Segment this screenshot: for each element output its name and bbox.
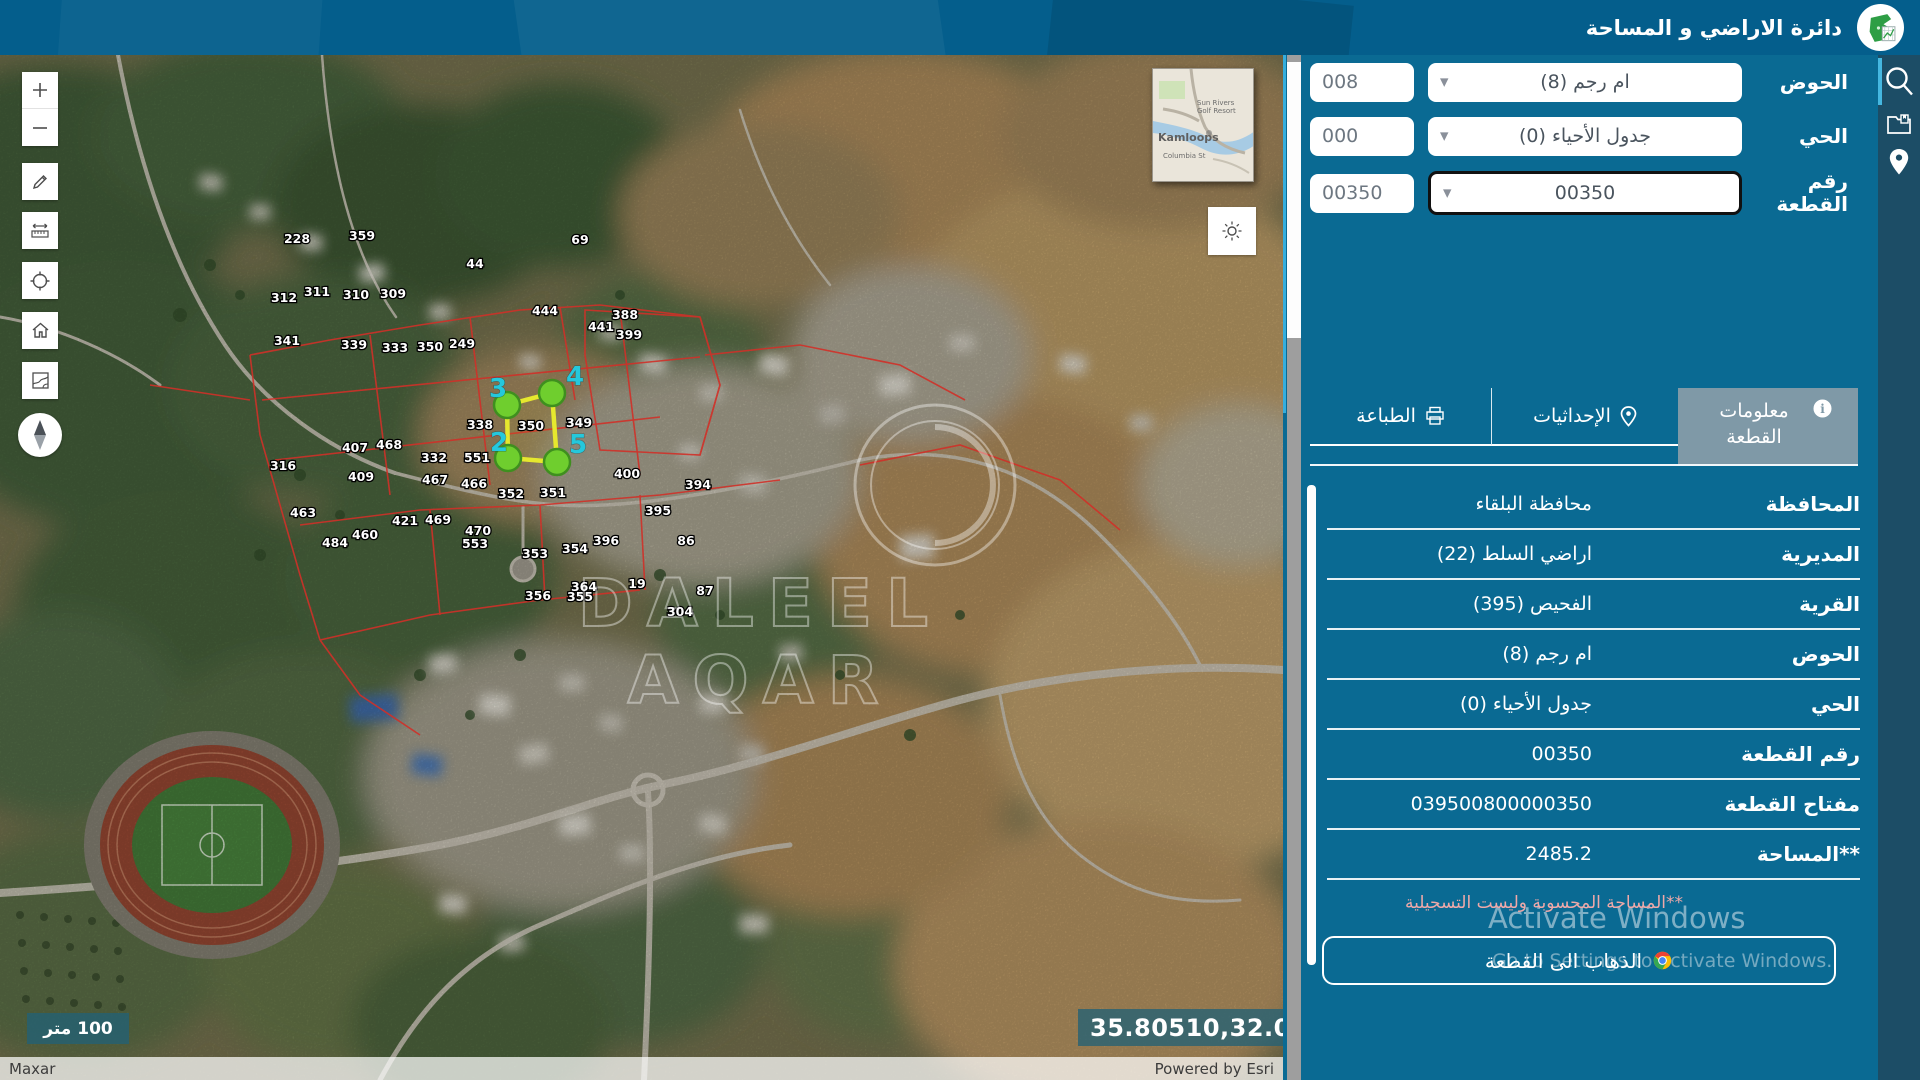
parcel-number-label: 359 [349,228,375,243]
parcel-number-label: 349 [566,415,592,430]
parcel-number-label: 421 [392,513,418,528]
pencil-icon [30,172,50,192]
info-row-label: المحافظة [1610,492,1860,516]
parcel-number-label: 467 [422,472,448,487]
info-row-label: المديرية [1610,542,1860,566]
inset-poi-label: Sun Rivers Golf Resort [1197,99,1249,116]
parcel-number-label: 388 [612,307,638,322]
basin-row: الحوض ام رجم (8) ▼ [1308,62,1848,102]
chevron-down-icon: ▼ [1440,130,1448,143]
parcel-number-label: 354 [562,541,588,556]
inset-street-label: Columbia St [1163,152,1205,160]
home-icon [30,320,51,341]
info-row: الحوضام رجم (8) [1327,630,1860,680]
vertex-number-label: 5 [569,430,587,460]
home-extent-button[interactable] [22,312,58,349]
panel-scrollbar-thumb[interactable] [1287,62,1301,338]
coordinates-readout: 35.80510,32.00468 [1078,1009,1283,1046]
compass-needle-icon [27,419,53,451]
zoom-out-button[interactable] [22,109,58,146]
parcel-number-label: 332 [421,450,447,465]
map-attribution: Maxar Powered by Esri [0,1057,1283,1080]
parcel-number-label: 356 [525,588,551,603]
parcel-number-label: 249 [449,336,475,351]
app-title: دائرة الاراضي و المساحة [1586,0,1842,55]
measure-tool-button[interactable] [22,212,58,249]
district-code-input[interactable] [1310,117,1414,156]
info-row: **المساحة2485.2 [1327,830,1860,880]
header-decoration [57,0,323,55]
parcel-number-label: 551 [464,450,490,465]
basin-label: الحوض [1756,71,1848,94]
info-row-value: 039500800000350 [1327,793,1592,815]
parcel-number-label: 441 [588,319,614,334]
parcel-number-label: 352 [498,486,524,501]
header-decoration [514,0,947,55]
scale-bar: 100 متر [27,1013,129,1044]
parcel-number-label: 44 [466,256,484,271]
parcel-number-label: 312 [271,290,297,305]
info-row: الحيجدول الأحياء (0) [1327,680,1860,730]
info-row: المحافظةمحافظة البلقاء [1327,480,1860,530]
info-row-label: القرية [1610,592,1860,616]
info-row-value: اراضي السلط (22) [1327,543,1592,565]
parcel-number-label: 69 [571,232,588,247]
parcel-number-label: 399 [616,327,642,342]
parcel-number-label: رقم القطعة [1756,170,1848,216]
parcel-number-label: 304 [667,604,693,619]
locate-button[interactable] [22,262,58,299]
sun-icon [1220,219,1244,243]
district-dropdown-value: جدول الأحياء (0) [1519,125,1651,147]
basin-code-input[interactable] [1310,63,1414,102]
parcel-vertex-handle[interactable] [544,449,570,475]
rail-location-button[interactable] [1878,148,1920,176]
panel-accent-bar [1283,55,1286,413]
parcel-number-label: 350 [518,418,544,433]
search-form: الحوض ام رجم (8) ▼ الحي جدول الأحياء (0)… [1308,62,1848,216]
info-row-value: محافظة البلقاء [1327,493,1592,515]
app-header: دائرة الاراضي و المساحة [0,0,1920,55]
info-row: رقم القطعة00350 [1327,730,1860,780]
parcel-number-value: 00350 [1555,182,1615,204]
ruler-icon [29,220,51,242]
tab-print[interactable]: الطباعة [1310,388,1492,446]
draw-tool-button[interactable] [22,163,58,200]
parcel-number-label: 311 [304,284,330,299]
parcel-number-label: 351 [540,485,566,500]
satellite-imagery: 3425 22835931231131030969444443884413993… [0,55,1283,1080]
vertex-number-label: 2 [490,428,508,458]
tab-print-label: الطباعة [1356,405,1416,427]
chevron-down-icon: ▼ [1440,76,1448,89]
attribution-maxar: Maxar [9,1060,55,1078]
right-toolbar-rail [1878,55,1920,1080]
parcel-number-row: رقم القطعة 00350 ▼ [1308,170,1848,216]
parcel-number-label: 469 [425,512,451,527]
parcel-number-label: 338 [467,417,493,432]
tab-coordinates[interactable]: الإحداثيات [1492,388,1678,446]
parcel-number-label: 553 [462,536,488,551]
go-to-parcel-button[interactable]: الذهاب الى القطعة [1322,936,1836,985]
map-canvas[interactable]: 3425 22835931231131030969444443884413993… [0,55,1283,1080]
parcel-number-label: 309 [380,286,406,301]
zoom-control-group[interactable] [22,72,58,146]
parcel-number-label: 409 [348,469,374,484]
parcel-number-label: 460 [352,527,378,542]
parcel-number-label: 484 [322,535,348,550]
chrome-icon [1652,950,1673,971]
parcel-number-label: 463 [290,505,316,520]
svg-text:i: i [1820,402,1825,416]
header-decoration [1046,0,1354,55]
parcel-code-input[interactable] [1310,174,1414,213]
parcel-number-label: 350 [417,339,443,354]
map-icon [30,370,51,391]
vertex-number-label: 3 [489,374,507,404]
panel-tabs: i معلومات القطعة الإحداثيات الطباعة [1310,388,1858,466]
parcel-info-table: المحافظةمحافظة البلقاءالمديريةاراضي السل… [1327,480,1860,880]
parcel-number-label: 444 [532,303,558,318]
parcel-number-label: 407 [342,440,368,455]
parcel-search-panel: الحوض ام رجم (8) ▼ الحي جدول الأحياء (0)… [1283,55,1878,1080]
info-row-value: 2485.2 [1327,843,1592,865]
location-pin-icon [1888,148,1910,176]
parcel-number-label: 400 [614,466,640,481]
brightness-button[interactable] [1208,207,1256,255]
plus-icon [31,81,49,99]
parcel-number-label: 228 [284,231,310,246]
tab-coordinates-label: الإحداثيات [1533,405,1611,427]
info-row-value: جدول الأحياء (0) [1327,693,1592,715]
printer-icon [1425,406,1445,426]
parcel-vertex-handle[interactable] [539,380,565,406]
basin-dropdown-value: ام رجم (8) [1540,71,1630,93]
parcel-number-label: 353 [522,546,548,561]
parcel-number-label: 339 [341,337,367,352]
area-footnote: **المساحة المحسوبة وليست التسجيلية [1405,893,1683,913]
content-scrollbar-thumb[interactable] [1307,485,1316,965]
district-row: الحي جدول الأحياء (0) ▼ [1308,116,1848,156]
crosshair-icon [29,270,51,292]
parcel-number-label: 341 [274,333,300,348]
overview-inset-map[interactable]: Kamloops Columbia St Sun Rivers Golf Res… [1152,68,1254,182]
pin-icon [1620,406,1637,427]
attribution-esri: Powered by Esri [1155,1060,1274,1078]
search-icon [1883,65,1915,99]
info-row-value: ام رجم (8) [1327,643,1592,665]
jordan-map-logo-icon [1862,9,1900,47]
info-row: القريةالفحيص (395) [1327,580,1860,630]
inset-map-graphic [1153,69,1254,182]
parcel-number-label: 466 [461,476,487,491]
parcel-number-label: 86 [677,533,695,548]
parcel-number-combobox[interactable]: 00350 ▼ [1428,171,1742,215]
minus-icon [31,119,49,137]
basin-dropdown[interactable]: ام رجم (8) ▼ [1428,63,1742,102]
zoom-in-button[interactable] [22,72,58,109]
info-row: مفتاح القطعة039500800000350 [1327,780,1860,830]
district-label: الحي [1756,125,1848,148]
parcel-number-label: 394 [685,477,711,492]
info-row-label: مفتاح القطعة [1610,792,1860,816]
inset-place-label: Kamloops [1158,131,1219,144]
parcel-number-label: 395 [645,503,671,518]
parcel-number-label: 396 [593,533,619,548]
info-row-label: الحوض [1610,642,1860,666]
vertex-number-label: 4 [566,362,584,392]
chevron-down-icon: ▼ [1443,187,1451,200]
tab-parcel-info-label: معلومات القطعة [1704,399,1804,450]
info-row-label: **المساحة [1610,842,1860,866]
info-row: المديريةاراضي السلط (22) [1327,530,1860,580]
parcel-number-label: 364 [571,579,597,594]
rail-search-button[interactable] [1878,65,1920,99]
dls-logo [1857,4,1904,51]
compass-button[interactable] [18,413,62,457]
parcel-number-label: 87 [696,583,713,598]
district-dropdown[interactable]: جدول الأحياء (0) ▼ [1428,117,1742,156]
parcel-number-label: 19 [628,576,645,591]
info-row-value: 00350 [1327,743,1592,765]
rail-documents-button[interactable] [1878,112,1920,136]
parcel-number-label: 468 [376,437,402,452]
info-row-label: رقم القطعة [1610,742,1860,766]
go-to-parcel-label: الذهاب الى القطعة [1485,949,1642,973]
info-icon: i [1813,399,1832,418]
parcel-number-label: 310 [343,287,369,302]
parcel-number-label: 333 [382,340,408,355]
tab-parcel-info[interactable]: i معلومات القطعة [1678,388,1858,464]
basemap-button[interactable] [22,362,58,399]
info-row-value: الفحيص (395) [1327,593,1592,615]
info-row-label: الحي [1610,692,1860,716]
documents-folder-icon [1886,112,1912,136]
parcel-number-label: 316 [270,458,296,473]
